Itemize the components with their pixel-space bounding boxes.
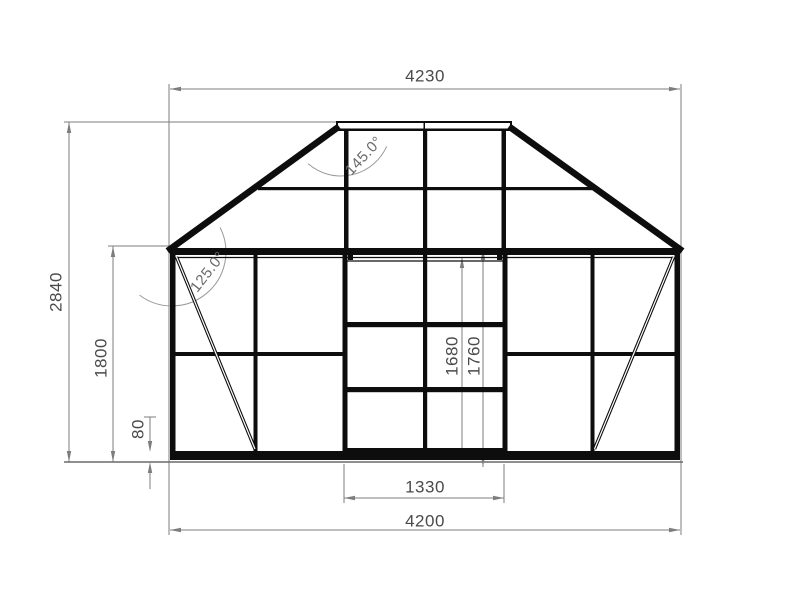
dim-label-door-opening-height: 1680 xyxy=(444,336,461,376)
door-jamb-left xyxy=(343,252,348,460)
eave-beam xyxy=(171,248,679,255)
base-rail xyxy=(170,451,680,460)
greenhouse-elevation-drawing: 4230 2840 1800 80 1680 1760 1330 4200 14… xyxy=(0,0,800,600)
ridge-bar xyxy=(336,121,512,131)
door-center-stile xyxy=(423,255,427,452)
door-rail-upper xyxy=(347,322,503,327)
greenhouse-structure xyxy=(168,121,683,460)
roof-horizontal-bar xyxy=(258,187,592,190)
dim-label-base-width: 4200 xyxy=(405,513,445,530)
door-rail-lower xyxy=(347,387,503,392)
dim-label-plinth-height: 80 xyxy=(130,419,147,439)
dim-label-top-width: 4230 xyxy=(405,68,445,85)
wall-midrail-right xyxy=(508,352,675,356)
wall-post-right xyxy=(675,250,681,460)
door-hanger-left xyxy=(348,254,353,260)
dim-label-overall-height: 2840 xyxy=(48,272,65,312)
dim-label-door-width: 1330 xyxy=(405,479,445,496)
dim-label-door-height: 1760 xyxy=(466,336,483,376)
door-hanger-right xyxy=(497,254,502,260)
dim-label-eave-height: 1800 xyxy=(93,338,110,378)
wall-midrail-left xyxy=(176,352,343,356)
door-jamb-right xyxy=(503,252,508,460)
drawing-canvas xyxy=(0,0,800,600)
wall-post-left xyxy=(170,250,176,460)
